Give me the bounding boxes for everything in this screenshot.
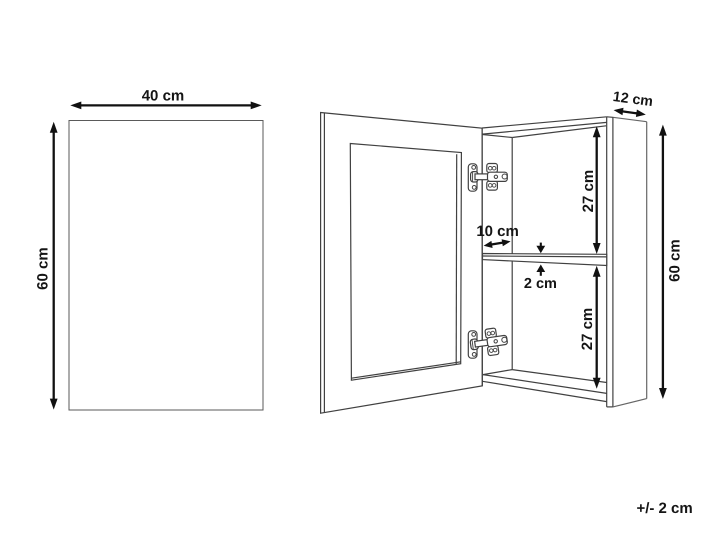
svg-text:2 cm: 2 cm [524, 276, 557, 292]
svg-text:60 cm: 60 cm [35, 247, 52, 290]
svg-text:+/- 2 cm: +/- 2 cm [636, 500, 692, 517]
svg-text:60 cm: 60 cm [667, 239, 684, 282]
svg-text:40 cm: 40 cm [142, 87, 185, 104]
svg-text:27 cm: 27 cm [580, 170, 597, 213]
svg-text:27 cm: 27 cm [579, 308, 596, 351]
svg-text:10 cm: 10 cm [476, 223, 519, 240]
